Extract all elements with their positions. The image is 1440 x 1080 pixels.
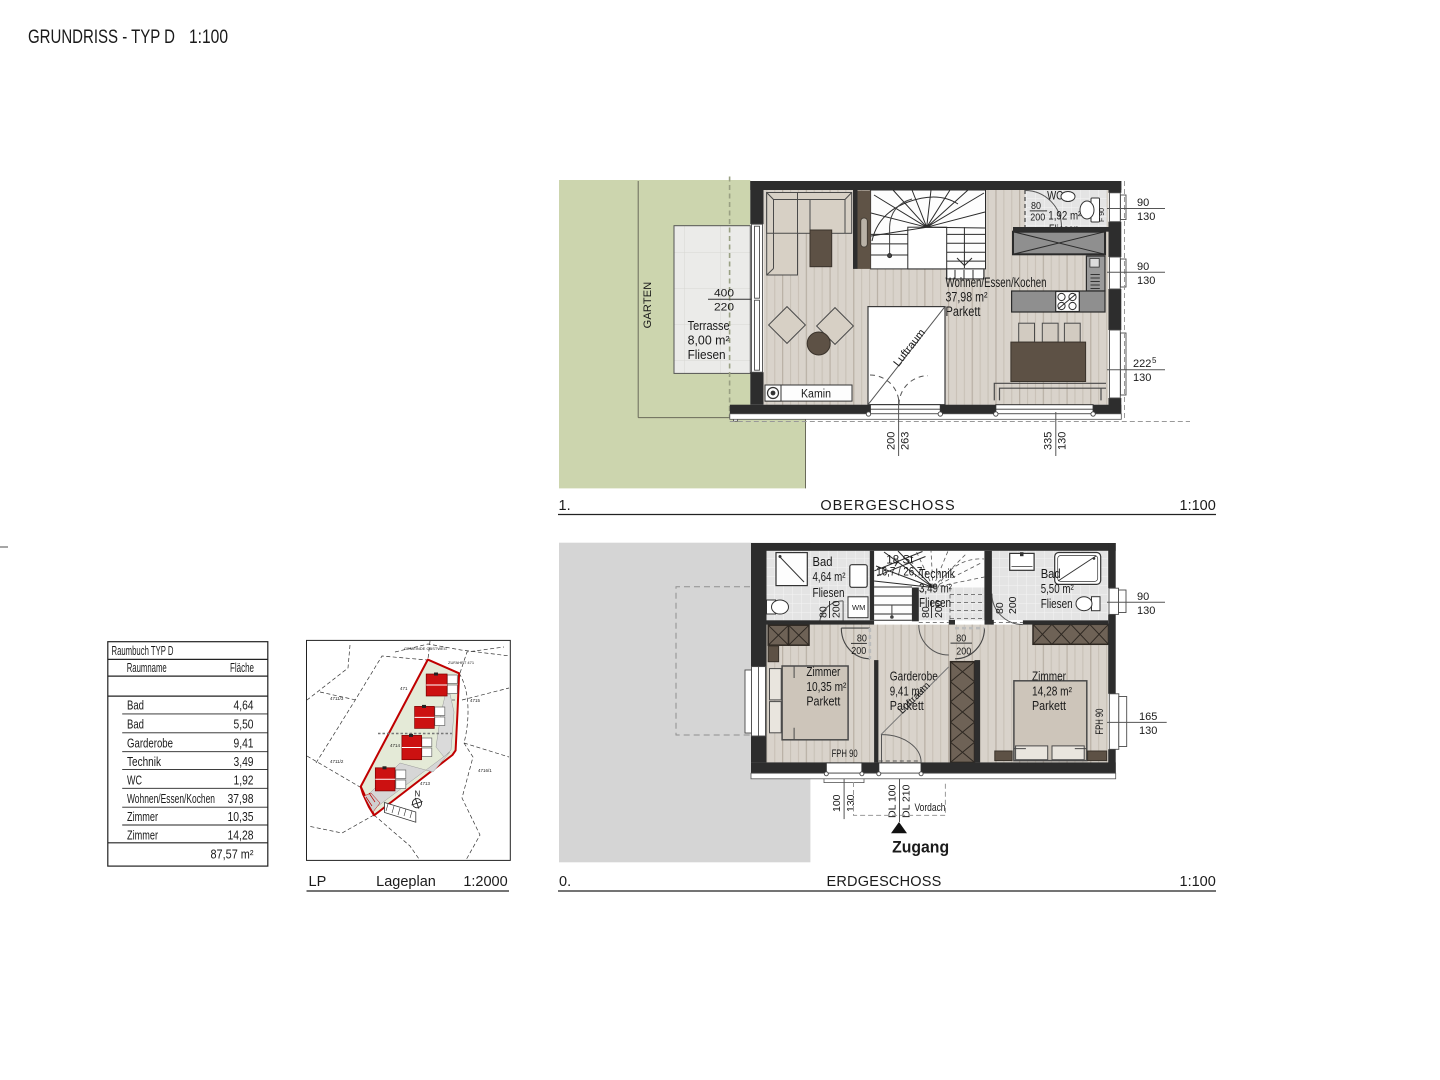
svg-text:4,64: 4,64 (234, 698, 254, 713)
svg-text:Bad: Bad (1041, 567, 1061, 581)
svg-text:Zimmer: Zimmer (806, 665, 840, 679)
svg-text:80: 80 (994, 602, 1006, 614)
svg-text:Parkett: Parkett (1032, 699, 1066, 713)
svg-text:Raumname: Raumname (127, 660, 167, 675)
svg-text:200: 200 (933, 600, 945, 618)
svg-text:Raumbuch TYP D: Raumbuch TYP D (112, 643, 174, 658)
svg-text:4711/3: 4711/3 (330, 696, 344, 701)
svg-text:Vordach: Vordach (915, 802, 946, 814)
svg-text:5,50: 5,50 (234, 716, 254, 731)
svg-text:130: 130 (1137, 605, 1155, 617)
svg-text:14,28 m²: 14,28 m² (1032, 685, 1072, 699)
svg-text:100: 100 (831, 794, 843, 812)
svg-text:Wohnen/Essen/Kochen: Wohnen/Essen/Kochen (127, 791, 215, 806)
svg-text:Zugang: Zugang (892, 839, 949, 857)
svg-text:335: 335 (1043, 432, 1055, 450)
svg-text:1,92 m²: 1,92 m² (1048, 209, 1081, 223)
svg-text:3,49: 3,49 (234, 754, 254, 769)
svg-text:130: 130 (1057, 432, 1069, 450)
svg-text:4711/2: 4711/2 (330, 759, 344, 764)
svg-text:37,98: 37,98 (228, 791, 254, 806)
svg-text:200: 200 (1007, 596, 1019, 614)
svg-text:37,98 m²: 37,98 m² (946, 290, 988, 305)
svg-text:Bad: Bad (127, 698, 144, 713)
svg-text:400: 400 (714, 288, 734, 300)
svg-text:4715: 4715 (470, 698, 481, 703)
svg-text:Zimmer: Zimmer (1032, 670, 1066, 684)
svg-text:1:100: 1:100 (1180, 498, 1216, 514)
svg-text:WM: WM (852, 603, 865, 612)
svg-text:5: 5 (1152, 356, 1157, 365)
svg-text:Parkett: Parkett (806, 695, 840, 709)
svg-text:200: 200 (886, 432, 898, 450)
svg-text:OBERGESCHOSS: OBERGESCHOSS (820, 498, 955, 514)
svg-text:0.: 0. (559, 874, 571, 890)
svg-text:F 90: F 90 (1099, 208, 1106, 222)
svg-text:Fläche: Fläche (230, 660, 254, 675)
svg-text:80: 80 (818, 606, 830, 618)
svg-text:Bad: Bad (813, 555, 833, 569)
svg-text:130: 130 (1139, 725, 1157, 737)
svg-text:200: 200 (831, 600, 843, 618)
svg-text:Garderobe: Garderobe (890, 670, 938, 684)
svg-text:130: 130 (845, 794, 857, 812)
svg-text:9,41: 9,41 (234, 735, 254, 750)
svg-text:Parkett: Parkett (946, 304, 981, 319)
svg-text:DL 100: DL 100 (887, 784, 899, 818)
svg-text:16,7 / 26,7: 16,7 / 26,7 (876, 565, 922, 579)
svg-text:Terrasse: Terrasse (688, 318, 730, 333)
svg-text:Zimmer: Zimmer (127, 809, 159, 824)
svg-text:220: 220 (714, 302, 734, 314)
svg-text:Fliesen: Fliesen (688, 347, 726, 362)
svg-text:80: 80 (920, 606, 932, 618)
svg-text:1:100: 1:100 (189, 26, 228, 48)
svg-text:165: 165 (1139, 711, 1157, 723)
svg-text:DL 210: DL 210 (901, 784, 913, 818)
svg-text:222: 222 (1133, 358, 1151, 370)
svg-text:14,28: 14,28 (228, 827, 254, 842)
svg-text:263: 263 (900, 432, 912, 450)
svg-text:5,50 m²: 5,50 m² (1041, 582, 1074, 596)
svg-text:1,92: 1,92 (234, 772, 254, 787)
svg-text:200: 200 (956, 645, 971, 657)
svg-text:Fliesen: Fliesen (1041, 597, 1073, 611)
svg-text:200: 200 (851, 645, 866, 657)
svg-text:87,57 m²: 87,57 m² (211, 847, 255, 862)
svg-text:80: 80 (956, 632, 966, 644)
svg-text:Lageplan: Lageplan (376, 874, 436, 890)
svg-text:FPH 90: FPH 90 (832, 748, 858, 760)
svg-text:1:2000: 1:2000 (463, 874, 507, 890)
svg-text:Zimmer: Zimmer (127, 827, 159, 842)
svg-text:ERDGESCHOSS: ERDGESCHOSS (827, 874, 942, 890)
svg-text:4713: 4713 (420, 781, 431, 786)
svg-text:ZUFAHRT 471: ZUFAHRT 471 (448, 660, 475, 665)
svg-text:80: 80 (857, 632, 867, 644)
svg-text:Technik: Technik (919, 567, 956, 581)
svg-text:GRUNDRISS - TYP D: GRUNDRISS - TYP D (28, 26, 175, 48)
svg-text:Kamin: Kamin (801, 389, 831, 401)
svg-text:Fliesen: Fliesen (813, 586, 845, 600)
svg-text:200: 200 (1030, 212, 1045, 224)
svg-text:90: 90 (1137, 197, 1149, 209)
svg-text:GARTEN: GARTEN (642, 282, 654, 329)
svg-text:LP: LP (309, 874, 327, 890)
svg-text:90: 90 (1137, 591, 1149, 603)
svg-text:N: N (415, 790, 421, 799)
svg-text:Technik: Technik (127, 754, 161, 769)
svg-text:Wohnen/Essen/Kochen: Wohnen/Essen/Kochen (946, 275, 1047, 290)
svg-text:WC: WC (127, 772, 142, 787)
svg-text:4716/1: 4716/1 (478, 768, 492, 773)
svg-text:1:100: 1:100 (1180, 874, 1216, 890)
svg-text:10,35: 10,35 (228, 809, 254, 824)
svg-text:GEMEINDE OBSTWEG: GEMEINDE OBSTWEG (404, 646, 447, 651)
svg-text:1.: 1. (559, 498, 571, 514)
svg-text:3,49 m²: 3,49 m² (919, 582, 952, 596)
svg-text:471: 471 (400, 686, 408, 691)
svg-text:130: 130 (1133, 372, 1151, 384)
svg-text:130: 130 (1137, 211, 1155, 223)
svg-text:Garderobe: Garderobe (127, 735, 173, 750)
svg-text:90: 90 (1137, 261, 1149, 273)
svg-text:80: 80 (1031, 200, 1041, 212)
svg-text:10,35 m²: 10,35 m² (806, 680, 846, 694)
svg-text:130: 130 (1137, 275, 1155, 287)
svg-text:8,00 m²: 8,00 m² (688, 333, 731, 348)
svg-text:4,64 m²: 4,64 m² (813, 570, 846, 584)
svg-text:Bad: Bad (127, 716, 144, 731)
svg-text:4714: 4714 (390, 743, 401, 748)
svg-text:FPH 90: FPH 90 (1094, 709, 1106, 735)
